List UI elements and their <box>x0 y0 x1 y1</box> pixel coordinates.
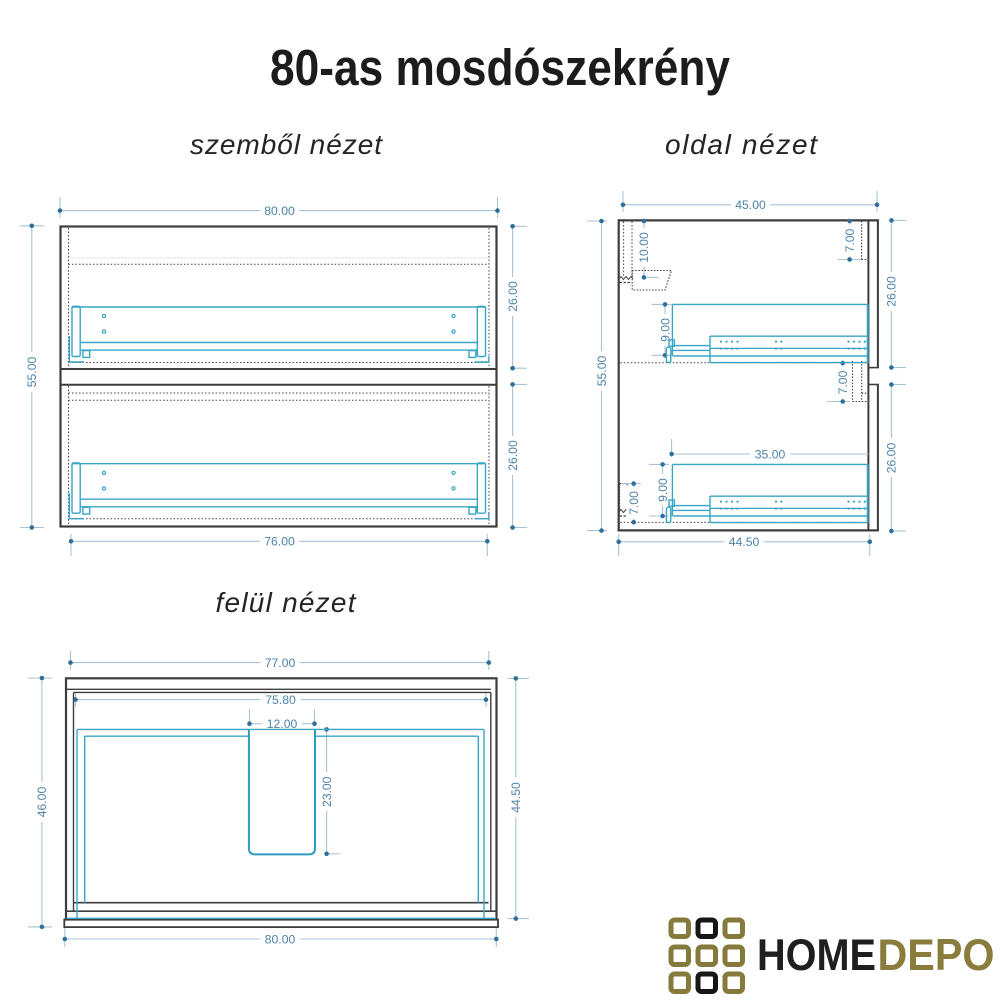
svg-text:76.00: 76.00 <box>264 535 295 549</box>
svg-text:80-as mosdószekrény: 80-as mosdószekrény <box>270 39 731 96</box>
svg-text:7.00: 7.00 <box>843 228 857 252</box>
svg-text:35.00: 35.00 <box>755 447 786 461</box>
svg-text:55.00: 55.00 <box>595 356 609 387</box>
svg-text:80.00: 80.00 <box>264 204 295 218</box>
svg-text:26.00: 26.00 <box>885 443 899 474</box>
svg-text:23.00: 23.00 <box>320 776 334 807</box>
svg-text:9.00: 9.00 <box>658 318 672 342</box>
svg-text:26.00: 26.00 <box>506 281 520 312</box>
svg-text:7.00: 7.00 <box>627 491 641 515</box>
svg-text:HOME: HOME <box>757 931 876 980</box>
svg-text:9.00: 9.00 <box>656 478 670 502</box>
svg-text:felül nézet: felül nézet <box>216 587 357 618</box>
svg-text:26.00: 26.00 <box>885 276 899 307</box>
svg-text:szemből nézet: szemből nézet <box>190 129 383 160</box>
svg-text:26.00: 26.00 <box>506 440 520 471</box>
svg-text:45.00: 45.00 <box>735 198 766 212</box>
svg-text:77.00: 77.00 <box>265 656 296 670</box>
svg-text:10.00: 10.00 <box>637 232 651 263</box>
svg-text:7.00: 7.00 <box>836 370 850 394</box>
svg-text:DEPO: DEPO <box>878 931 995 980</box>
svg-text:44.50: 44.50 <box>509 782 523 813</box>
svg-text:44.50: 44.50 <box>729 535 760 549</box>
svg-text:80.00: 80.00 <box>265 932 296 946</box>
svg-text:75.80: 75.80 <box>265 693 296 707</box>
svg-text:46.00: 46.00 <box>35 787 49 818</box>
svg-text:oldal nézet: oldal nézet <box>665 129 818 160</box>
svg-text:55.00: 55.00 <box>25 357 39 388</box>
